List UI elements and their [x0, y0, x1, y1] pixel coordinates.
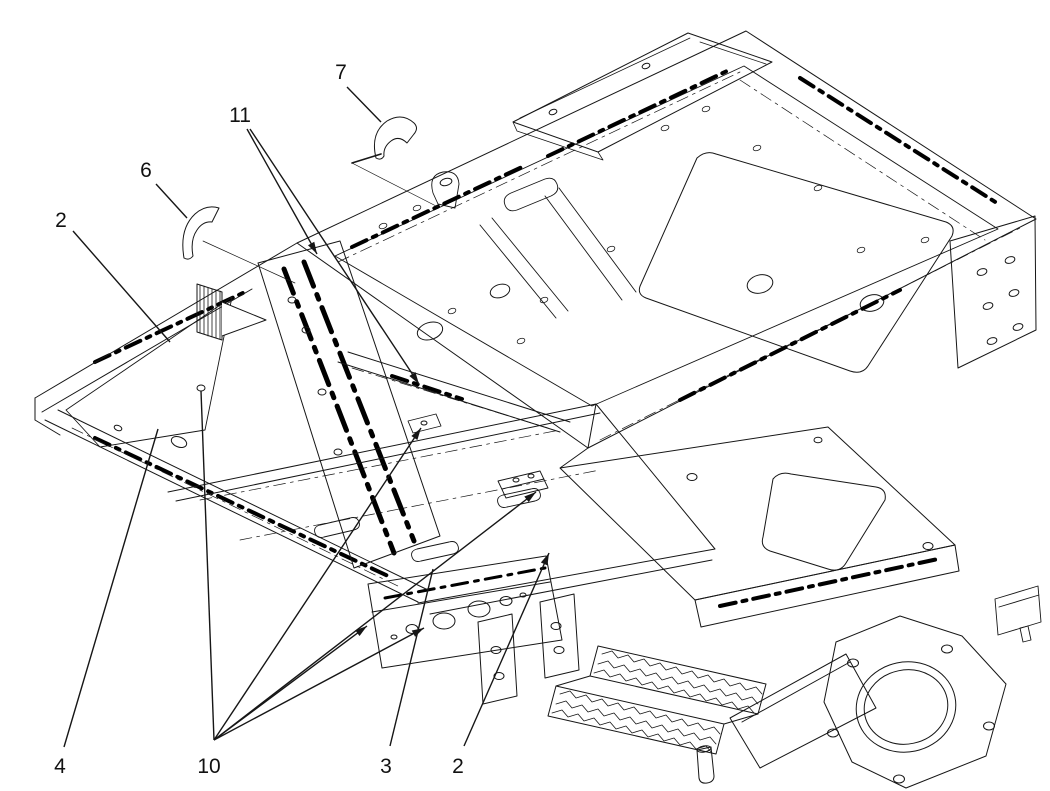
right-plate-assembly: [560, 427, 1041, 642]
leader-line: [247, 129, 317, 254]
leader-line: [214, 628, 424, 740]
callout-4-group: 4: [54, 429, 158, 778]
hatched-bracket: [197, 284, 266, 340]
callout-3-label: 3: [380, 755, 392, 778]
callout-2-top-group: 2: [55, 209, 170, 342]
front-cross-rail: [368, 556, 579, 704]
frame-illustration: 2671141032: [0, 0, 1050, 791]
small-holes-deck: [378, 105, 929, 344]
leader-line: [64, 429, 158, 747]
callout-2-top-label: 2: [55, 209, 67, 232]
leader-line: [73, 231, 170, 342]
leader-line: [156, 184, 187, 218]
callout-7-group: 7: [335, 61, 381, 122]
mid-floor-platform: [168, 352, 715, 614]
diagram-canvas: 2671141032: [0, 0, 1050, 791]
callout-7-label: 7: [335, 61, 347, 84]
leader-arrowhead-icon: [411, 428, 421, 440]
callout-10-label: 10: [197, 755, 220, 778]
callout-11-group: 11: [229, 104, 419, 384]
callouts-layer: 2671141032: [54, 61, 549, 778]
callout-2-bottom-group: 2: [452, 553, 549, 778]
callout-11-label: 11: [229, 104, 251, 127]
callout-10-group: 10: [197, 391, 536, 778]
curved-arrow-icon-6: [183, 207, 295, 283]
callout-6-label: 6: [140, 159, 152, 182]
callout-6-group: 6: [140, 159, 187, 218]
step-assembly: [548, 646, 876, 783]
callout-2-bottom-label: 2: [452, 755, 464, 778]
leader-line: [214, 428, 421, 740]
leader-line: [347, 87, 381, 122]
leader-line: [214, 626, 367, 740]
callout-3-group: 3: [380, 569, 433, 778]
anti-skid-tape-strips: [95, 71, 1000, 606]
leader-line: [201, 391, 214, 740]
curved-arrow-icon-7: [352, 117, 438, 207]
bolt-holes-right-plate: [976, 255, 1023, 345]
callout-4-label: 4: [54, 755, 66, 778]
flange-plate: [824, 616, 1006, 788]
